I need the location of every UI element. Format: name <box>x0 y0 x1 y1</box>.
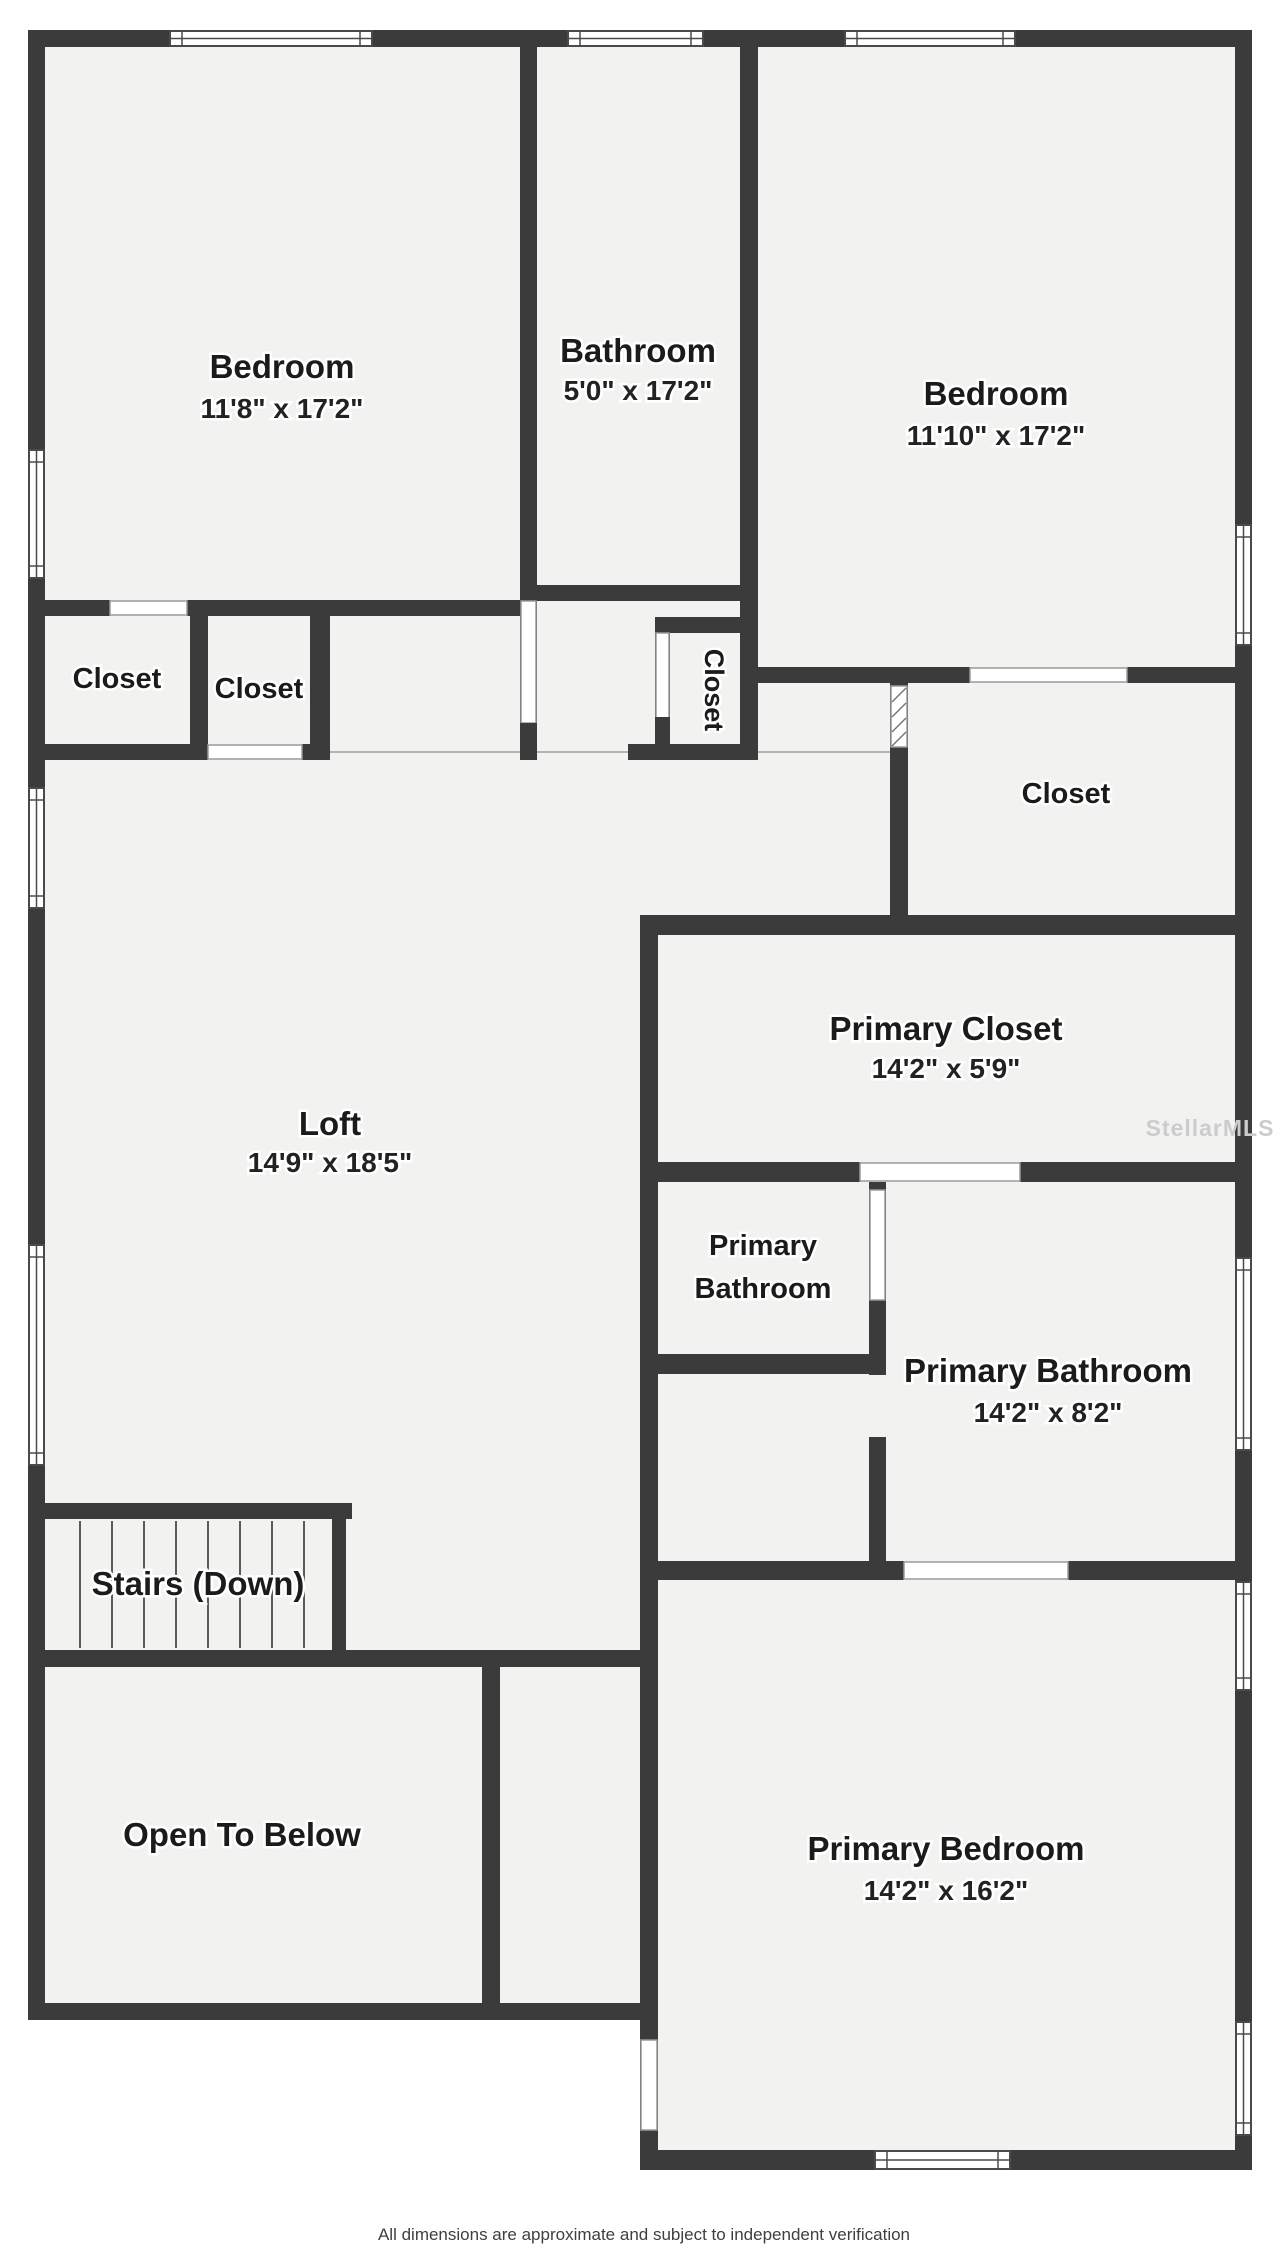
wall-right <box>1235 30 1252 2170</box>
wall-bedroom-top-a <box>658 1561 904 1580</box>
window-loft-left-upper <box>29 788 44 908</box>
door-midcloset-jamb <box>655 717 670 760</box>
label-wc-line1: Primary <box>709 1230 817 1262</box>
dims-loft: 14'9" x 18'5" <box>248 1147 412 1178</box>
label-closet1: Closet <box>73 663 162 695</box>
label-closet2: Closet <box>215 673 304 705</box>
dims-primary-bath: 14'2" x 8'2" <box>974 1397 1123 1428</box>
label-bedroom2: Bedroom <box>924 375 1069 412</box>
wall-closet1-bottom <box>28 744 208 760</box>
opening-rightcloset-top <box>970 668 1127 682</box>
door-bedroom-hall <box>641 2040 657 2130</box>
window-bedroom1-top <box>170 31 372 46</box>
dims-bedroom2: 11'10" x 17'2" <box>907 420 1085 451</box>
disclaimer-text: All dimensions are approximate and subje… <box>378 2225 910 2244</box>
wall-stairs-top <box>40 1503 352 1519</box>
wall-otb-right <box>482 1650 500 2020</box>
wall-bedroom1-bottom-b <box>187 600 536 616</box>
label-closet-mid: Closet <box>699 649 729 732</box>
wall-bathroom-bottom <box>536 585 758 601</box>
window-bedroom1-left <box>29 450 44 578</box>
floor-plan-svg: Bedroom 11'8" x 17'2" Bathroom 5'0" x 17… <box>0 0 1280 2252</box>
wall-primarycloset-bottom-b <box>1020 1162 1252 1182</box>
wall-midcloset-top <box>655 617 758 633</box>
label-wc-line2: Bathroom <box>695 1273 832 1305</box>
wall-bedroom1-bottom-a <box>28 600 110 616</box>
wall-wc-bottom <box>658 1354 886 1374</box>
label-primary-bath: Primary Bathroom <box>904 1352 1192 1389</box>
label-primary-closet: Primary Closet <box>830 1010 1063 1047</box>
door-bathroom <box>521 601 536 723</box>
watermark: StellarMLS <box>1146 1115 1275 1141</box>
label-bedroom1: Bedroom <box>210 348 355 385</box>
door-bathroom-jamb <box>520 723 537 760</box>
window-loft-left-lower <box>29 1245 44 1465</box>
label-open-to-below: Open To Below <box>123 1816 361 1853</box>
door-wc <box>870 1190 885 1300</box>
door-closet2-opening <box>208 745 302 759</box>
window-bedroom2-top <box>845 31 1015 46</box>
label-loft: Loft <box>299 1105 361 1142</box>
wall-bedroom2-bottom-a <box>758 667 970 683</box>
wall-primarycloset-top <box>640 915 1252 935</box>
floor-plan-page: Bedroom 11'8" x 17'2" Bathroom 5'0" x 17… <box>0 0 1280 2252</box>
label-stairs: Stairs (Down) <box>92 1565 305 1602</box>
wall-bedroom2-bottom-b <box>1127 667 1252 683</box>
window-bedroom-right-upper <box>1236 1582 1251 1690</box>
window-primarybath-right <box>1236 1258 1251 1450</box>
label-primary-bedroom: Primary Bedroom <box>808 1830 1085 1867</box>
wall-midcloset-bottom <box>628 744 758 760</box>
dims-bathroom: 5'0" x 17'2" <box>564 375 713 406</box>
dims-primary-closet: 14'2" x 5'9" <box>872 1053 1021 1084</box>
wall-primarycloset-bottom-a <box>658 1162 860 1182</box>
wall-closet2-right <box>310 600 330 760</box>
wall-closet2-bottom-pillar <box>302 744 330 760</box>
door-primarycloset <box>860 1163 1020 1181</box>
wall-bathroom-right <box>740 47 758 760</box>
label-bathroom: Bathroom <box>560 332 716 369</box>
door-primary-bedroom <box>904 1562 1068 1579</box>
dims-primary-bedroom: 14'2" x 16'2" <box>864 1875 1028 1906</box>
wall-stairs-right <box>332 1519 346 1650</box>
wall-stairs-bottom <box>28 1650 640 1667</box>
window-bathroom-top <box>568 31 703 46</box>
wall-otb-bottom <box>28 2003 658 2020</box>
wall-closet-divider <box>190 600 208 760</box>
wall-bedroom-top-b <box>1068 1561 1252 1580</box>
window-bedroom2-right <box>1236 525 1251 645</box>
door-midcloset <box>656 633 669 723</box>
label-closet-right: Closet <box>1022 778 1111 810</box>
dims-bedroom1: 11'8" x 17'2" <box>201 393 364 424</box>
door-bedroom1-closet <box>110 601 187 615</box>
wall-bath-stub <box>869 1437 886 1563</box>
window-bedroom-right-lower <box>1236 2022 1251 2135</box>
window-bedroom-bottom <box>875 2151 1010 2169</box>
wall-left <box>28 30 45 2020</box>
wall-main-divider <box>640 915 658 2170</box>
